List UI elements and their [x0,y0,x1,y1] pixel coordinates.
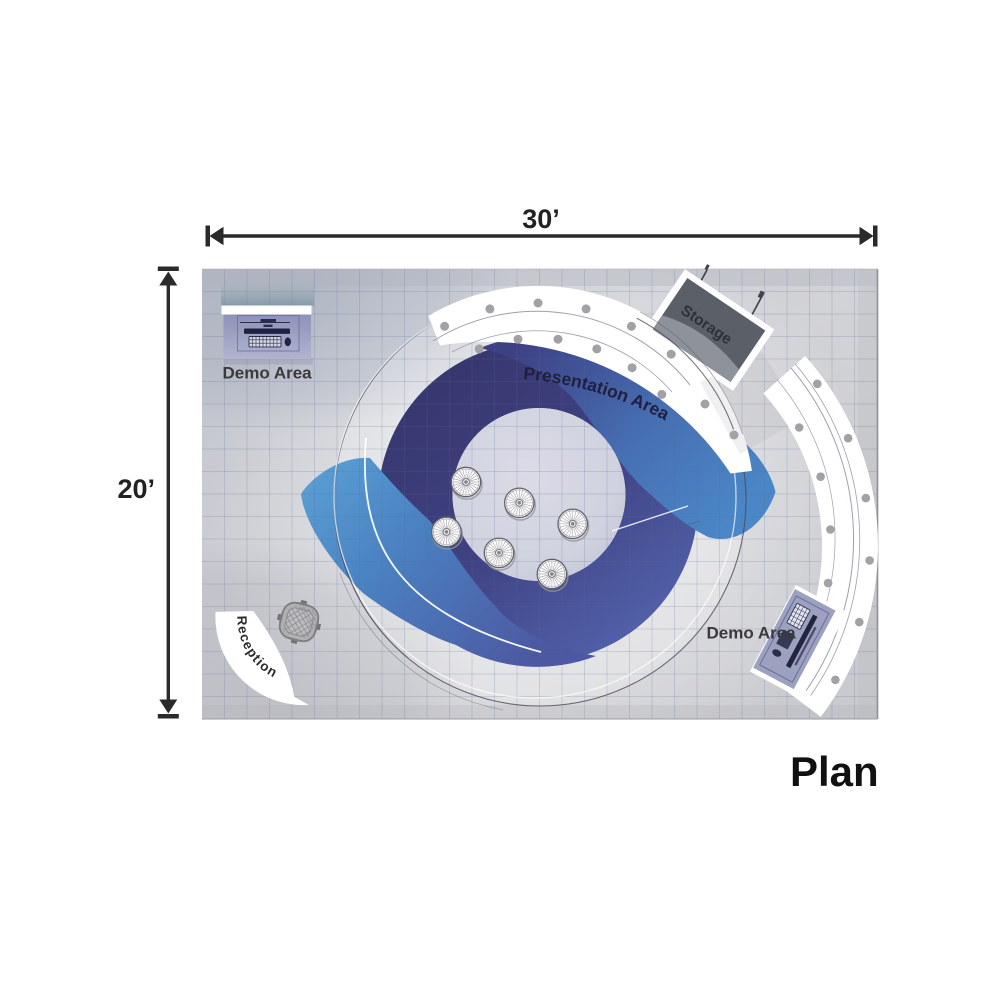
svg-text:Demo Area: Demo Area [707,624,797,643]
svg-text:Demo Area: Demo Area [223,364,313,383]
svg-text:20’: 20’ [117,474,155,504]
svg-text:Plan: Plan [790,748,879,795]
svg-text:30’: 30’ [522,204,560,234]
